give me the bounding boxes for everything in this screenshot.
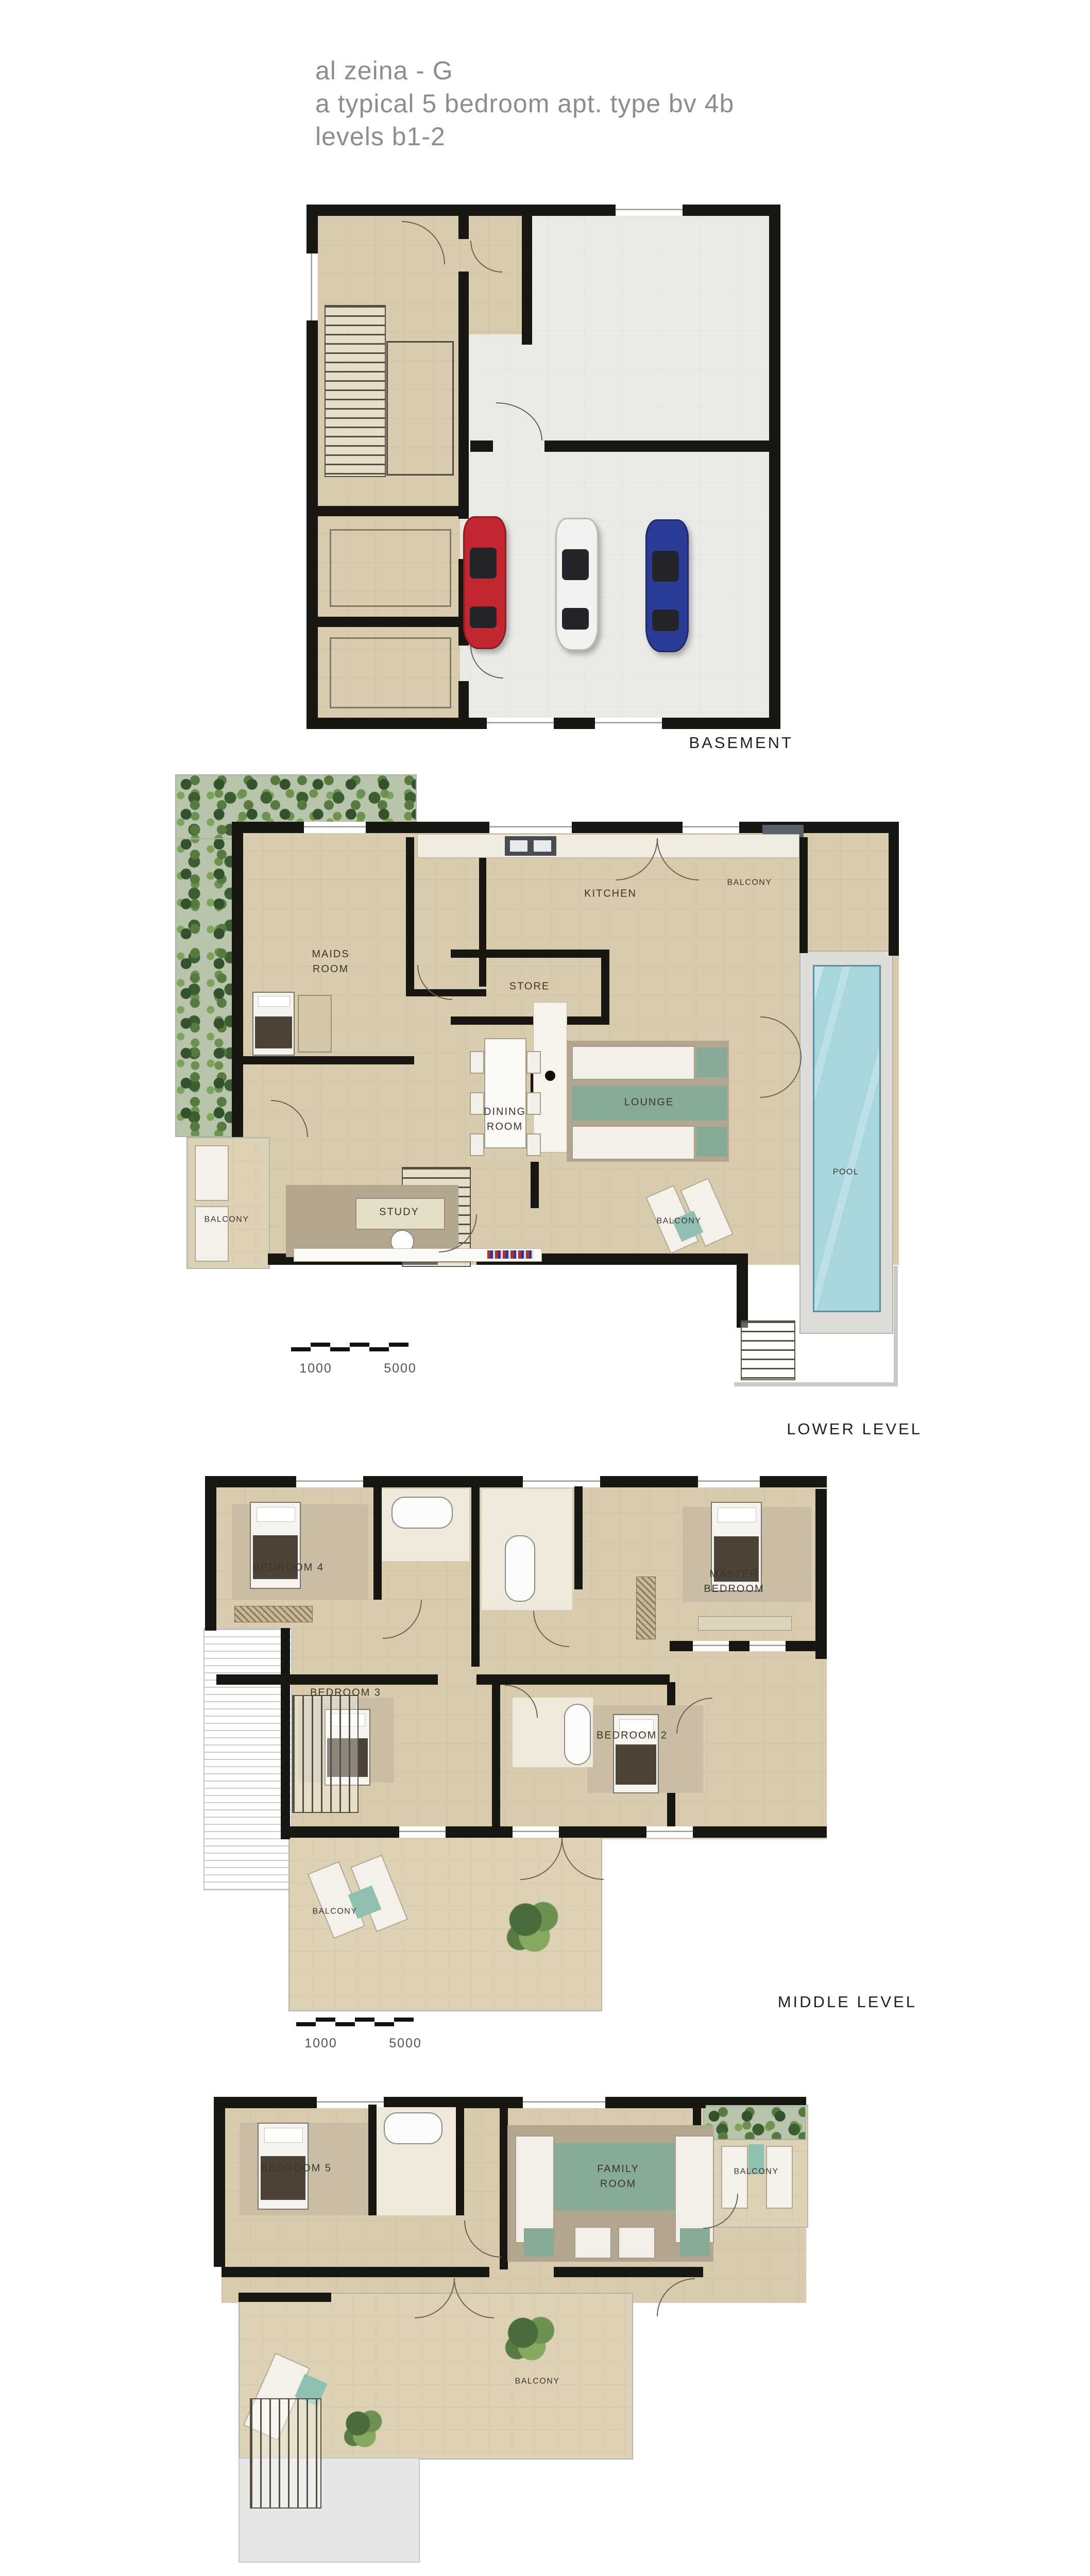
scale-segment xyxy=(330,1347,350,1351)
room-label-bedroom2: BEDROOM 2 xyxy=(597,1728,668,1743)
wall xyxy=(222,2267,489,2277)
wall xyxy=(476,1674,670,1685)
wall xyxy=(205,1476,216,1631)
scale-tick-1000: 1000 xyxy=(299,1361,332,1376)
wall xyxy=(458,272,469,519)
window xyxy=(693,1641,729,1651)
scale-segment xyxy=(369,1347,389,1351)
wall xyxy=(815,1489,827,1659)
wall xyxy=(232,822,243,1137)
wardrobe xyxy=(636,1577,656,1639)
roof-edge xyxy=(894,1266,898,1386)
stair-landing xyxy=(386,341,454,476)
wall xyxy=(216,1674,438,1685)
wall xyxy=(769,205,780,729)
vestibule-floor xyxy=(460,216,522,334)
bed-pillow xyxy=(258,996,289,1007)
wall xyxy=(451,1016,609,1025)
dresser xyxy=(698,1616,792,1631)
upper-level-plan: BEDROOM 5 FAMILY ROOM BALCONY BALCONY xyxy=(214,2097,824,2571)
sheet-title: al zeina - G xyxy=(315,56,453,86)
wardrobe xyxy=(234,1606,313,1622)
ottoman xyxy=(680,2228,710,2257)
window xyxy=(487,718,554,729)
sofa xyxy=(572,1126,695,1160)
sink-basin xyxy=(510,840,527,852)
window xyxy=(306,253,318,320)
bed xyxy=(250,1502,301,1589)
wall xyxy=(601,950,609,1025)
room-label-store: STORE xyxy=(509,979,550,994)
window xyxy=(750,1641,786,1651)
wall xyxy=(458,216,469,239)
bookshelf xyxy=(294,1248,542,1262)
car-rear-window xyxy=(652,609,679,631)
window xyxy=(523,1476,600,1487)
car-rear-window xyxy=(562,608,589,630)
stairs xyxy=(250,2398,321,2509)
room-label-balcony: BALCONY xyxy=(313,1905,357,1917)
wall xyxy=(470,440,493,452)
wall xyxy=(239,2293,331,2302)
armchair xyxy=(574,2227,611,2259)
room-label-balcony-bottom: BALCONY xyxy=(515,2375,560,2387)
ottoman xyxy=(524,2228,554,2257)
car-red xyxy=(463,516,506,649)
wall xyxy=(471,1486,480,1667)
kitchen-counter xyxy=(417,834,799,858)
hedge-planting xyxy=(703,2106,806,2140)
wall xyxy=(242,1056,414,1064)
bed-pillow xyxy=(718,1507,756,1522)
window xyxy=(399,1826,446,1838)
stairs xyxy=(292,1695,359,1813)
car-windshield xyxy=(470,548,497,579)
palm-plant xyxy=(502,2313,561,2362)
room-label-study: STUDY xyxy=(379,1205,419,1220)
wall xyxy=(458,681,469,718)
car-blue xyxy=(645,519,689,652)
wall xyxy=(318,506,460,516)
wall xyxy=(281,1628,290,1839)
wall xyxy=(214,2097,225,2267)
wall xyxy=(406,837,414,992)
window xyxy=(698,1476,760,1487)
wall xyxy=(456,2105,464,2215)
car-windshield xyxy=(652,551,679,582)
chair xyxy=(526,1133,541,1156)
room-label-balcony-top: BALCONY xyxy=(727,876,772,888)
bathtub xyxy=(391,1497,453,1529)
kitchen-island xyxy=(533,1002,567,1153)
wall xyxy=(492,1682,500,1826)
bathtub xyxy=(384,2112,442,2144)
sheet-subtitle: a typical 5 bedroom apt. type bv 4b xyxy=(315,89,734,118)
room-label-dining: DINING ROOM xyxy=(484,1105,526,1134)
kitchen-sink xyxy=(505,836,556,856)
wall xyxy=(451,950,609,958)
roof-edge xyxy=(734,1382,894,1386)
chair xyxy=(470,1092,484,1115)
bed-blanket xyxy=(255,1016,292,1048)
chair xyxy=(526,1051,541,1074)
palm-plant xyxy=(343,2406,386,2450)
room-label-master: MASTER BEDROOM xyxy=(704,1567,764,1597)
car-rear-window xyxy=(470,606,497,628)
scale-segment xyxy=(374,2022,394,2026)
wall xyxy=(318,617,460,627)
bed-pillow xyxy=(257,1507,295,1521)
scale-segment xyxy=(311,1343,330,1347)
sun-lounger xyxy=(195,1145,229,1201)
wall xyxy=(554,2267,703,2277)
bed-blanket xyxy=(616,1744,656,1785)
scale-tick-5000: 5000 xyxy=(384,1361,417,1376)
room-label-bedroom3: BEDROOM 3 xyxy=(310,1686,381,1701)
scale-segment xyxy=(296,2022,316,2026)
wall xyxy=(701,2097,806,2105)
sink-basin xyxy=(534,840,551,852)
bed-pillow xyxy=(264,2128,302,2142)
sheet-levels: levels b1-2 xyxy=(315,122,446,151)
wall xyxy=(737,1253,748,1328)
middle-level-caption: MIDDLE LEVEL xyxy=(747,1993,917,2011)
window xyxy=(646,1826,693,1838)
ottoman xyxy=(696,1047,727,1077)
wall xyxy=(574,1486,583,1589)
room-label-balcony-left: BALCONY xyxy=(205,1213,249,1225)
room-label-kitchen: KITCHEN xyxy=(584,887,637,902)
chair xyxy=(526,1092,541,1115)
wall xyxy=(544,440,769,452)
sofa xyxy=(572,1046,695,1080)
chair xyxy=(470,1133,484,1156)
window xyxy=(304,822,366,833)
car-windshield xyxy=(562,549,589,580)
room-label-bedroom4: BEDROOM 4 xyxy=(253,1561,324,1575)
chair xyxy=(470,1051,484,1074)
lower-roof-stripes xyxy=(203,1628,292,1890)
wall xyxy=(479,837,486,987)
basement-stairs xyxy=(325,305,386,477)
scale-segment xyxy=(355,2018,374,2022)
room-label-family: FAMILY ROOM xyxy=(597,2162,639,2192)
room-label-bedroom5: BEDROOM 5 xyxy=(261,2161,332,2176)
car-white xyxy=(555,518,599,651)
window xyxy=(296,1476,363,1487)
room-label-balcony-bottom: BALCONY xyxy=(657,1215,702,1227)
wall xyxy=(368,2105,377,2215)
room-label-pool: POOL xyxy=(833,1166,859,1178)
armchair xyxy=(618,2227,655,2259)
floor-plan-sheet: al zeina - G a typical 5 bedroom apt. ty… xyxy=(0,0,1090,2576)
wall xyxy=(306,205,780,216)
lower-level-caption: LOWER LEVEL xyxy=(762,1420,922,1438)
hob xyxy=(545,1071,555,1081)
scale-segment xyxy=(335,2022,355,2026)
scale-segment xyxy=(394,2018,414,2022)
upper-level-caption: UPPER LEVEL xyxy=(752,2574,917,2576)
window xyxy=(489,822,572,833)
room-label-maids: MAIDS ROOM xyxy=(312,947,349,977)
room-label-balcony-top: BALCONY xyxy=(734,2165,779,2177)
window xyxy=(595,718,662,729)
scale-segment xyxy=(316,2018,335,2022)
wall xyxy=(373,1486,382,1600)
bed xyxy=(252,992,295,1056)
scale-bar: 1000 5000 xyxy=(291,1343,415,1379)
lower-level-plan: MAIDS ROOM KITCHEN STORE DINING ROOM LOU… xyxy=(175,770,927,1445)
pool xyxy=(813,965,881,1312)
storage-room-outline xyxy=(330,637,451,708)
garden-steps xyxy=(741,1320,795,1380)
wardrobe xyxy=(298,995,332,1053)
middle-level-plan: BEDROOM 4 BEDROOM 3 BEDROOM 2 MASTER BED… xyxy=(203,1476,889,2069)
bathtub xyxy=(505,1535,535,1602)
scale-tick-5000: 5000 xyxy=(389,2036,422,2051)
wall xyxy=(799,837,808,953)
bed xyxy=(613,1714,659,1793)
ottoman xyxy=(696,1127,727,1157)
window xyxy=(616,205,683,216)
palm-plant xyxy=(505,1896,564,1955)
wall xyxy=(522,216,532,345)
scale-segment xyxy=(350,1343,369,1347)
scale-segment xyxy=(291,1347,311,1351)
window xyxy=(523,2097,605,2108)
scale-tick-1000: 1000 xyxy=(304,2036,337,2051)
basement-caption: BASEMENT xyxy=(654,734,793,752)
storage-room-outline xyxy=(330,529,451,607)
wall xyxy=(889,822,899,956)
sofa xyxy=(515,2136,554,2243)
bathtub xyxy=(564,1704,591,1765)
books xyxy=(487,1250,534,1259)
wall xyxy=(531,1162,539,1208)
scale-bar: 1000 5000 xyxy=(296,2018,420,2054)
room-label-lounge: LOUNGE xyxy=(624,1095,674,1110)
window xyxy=(513,1826,559,1838)
scale-segment xyxy=(389,1343,408,1347)
basement-plan xyxy=(306,205,780,729)
window xyxy=(683,822,739,833)
